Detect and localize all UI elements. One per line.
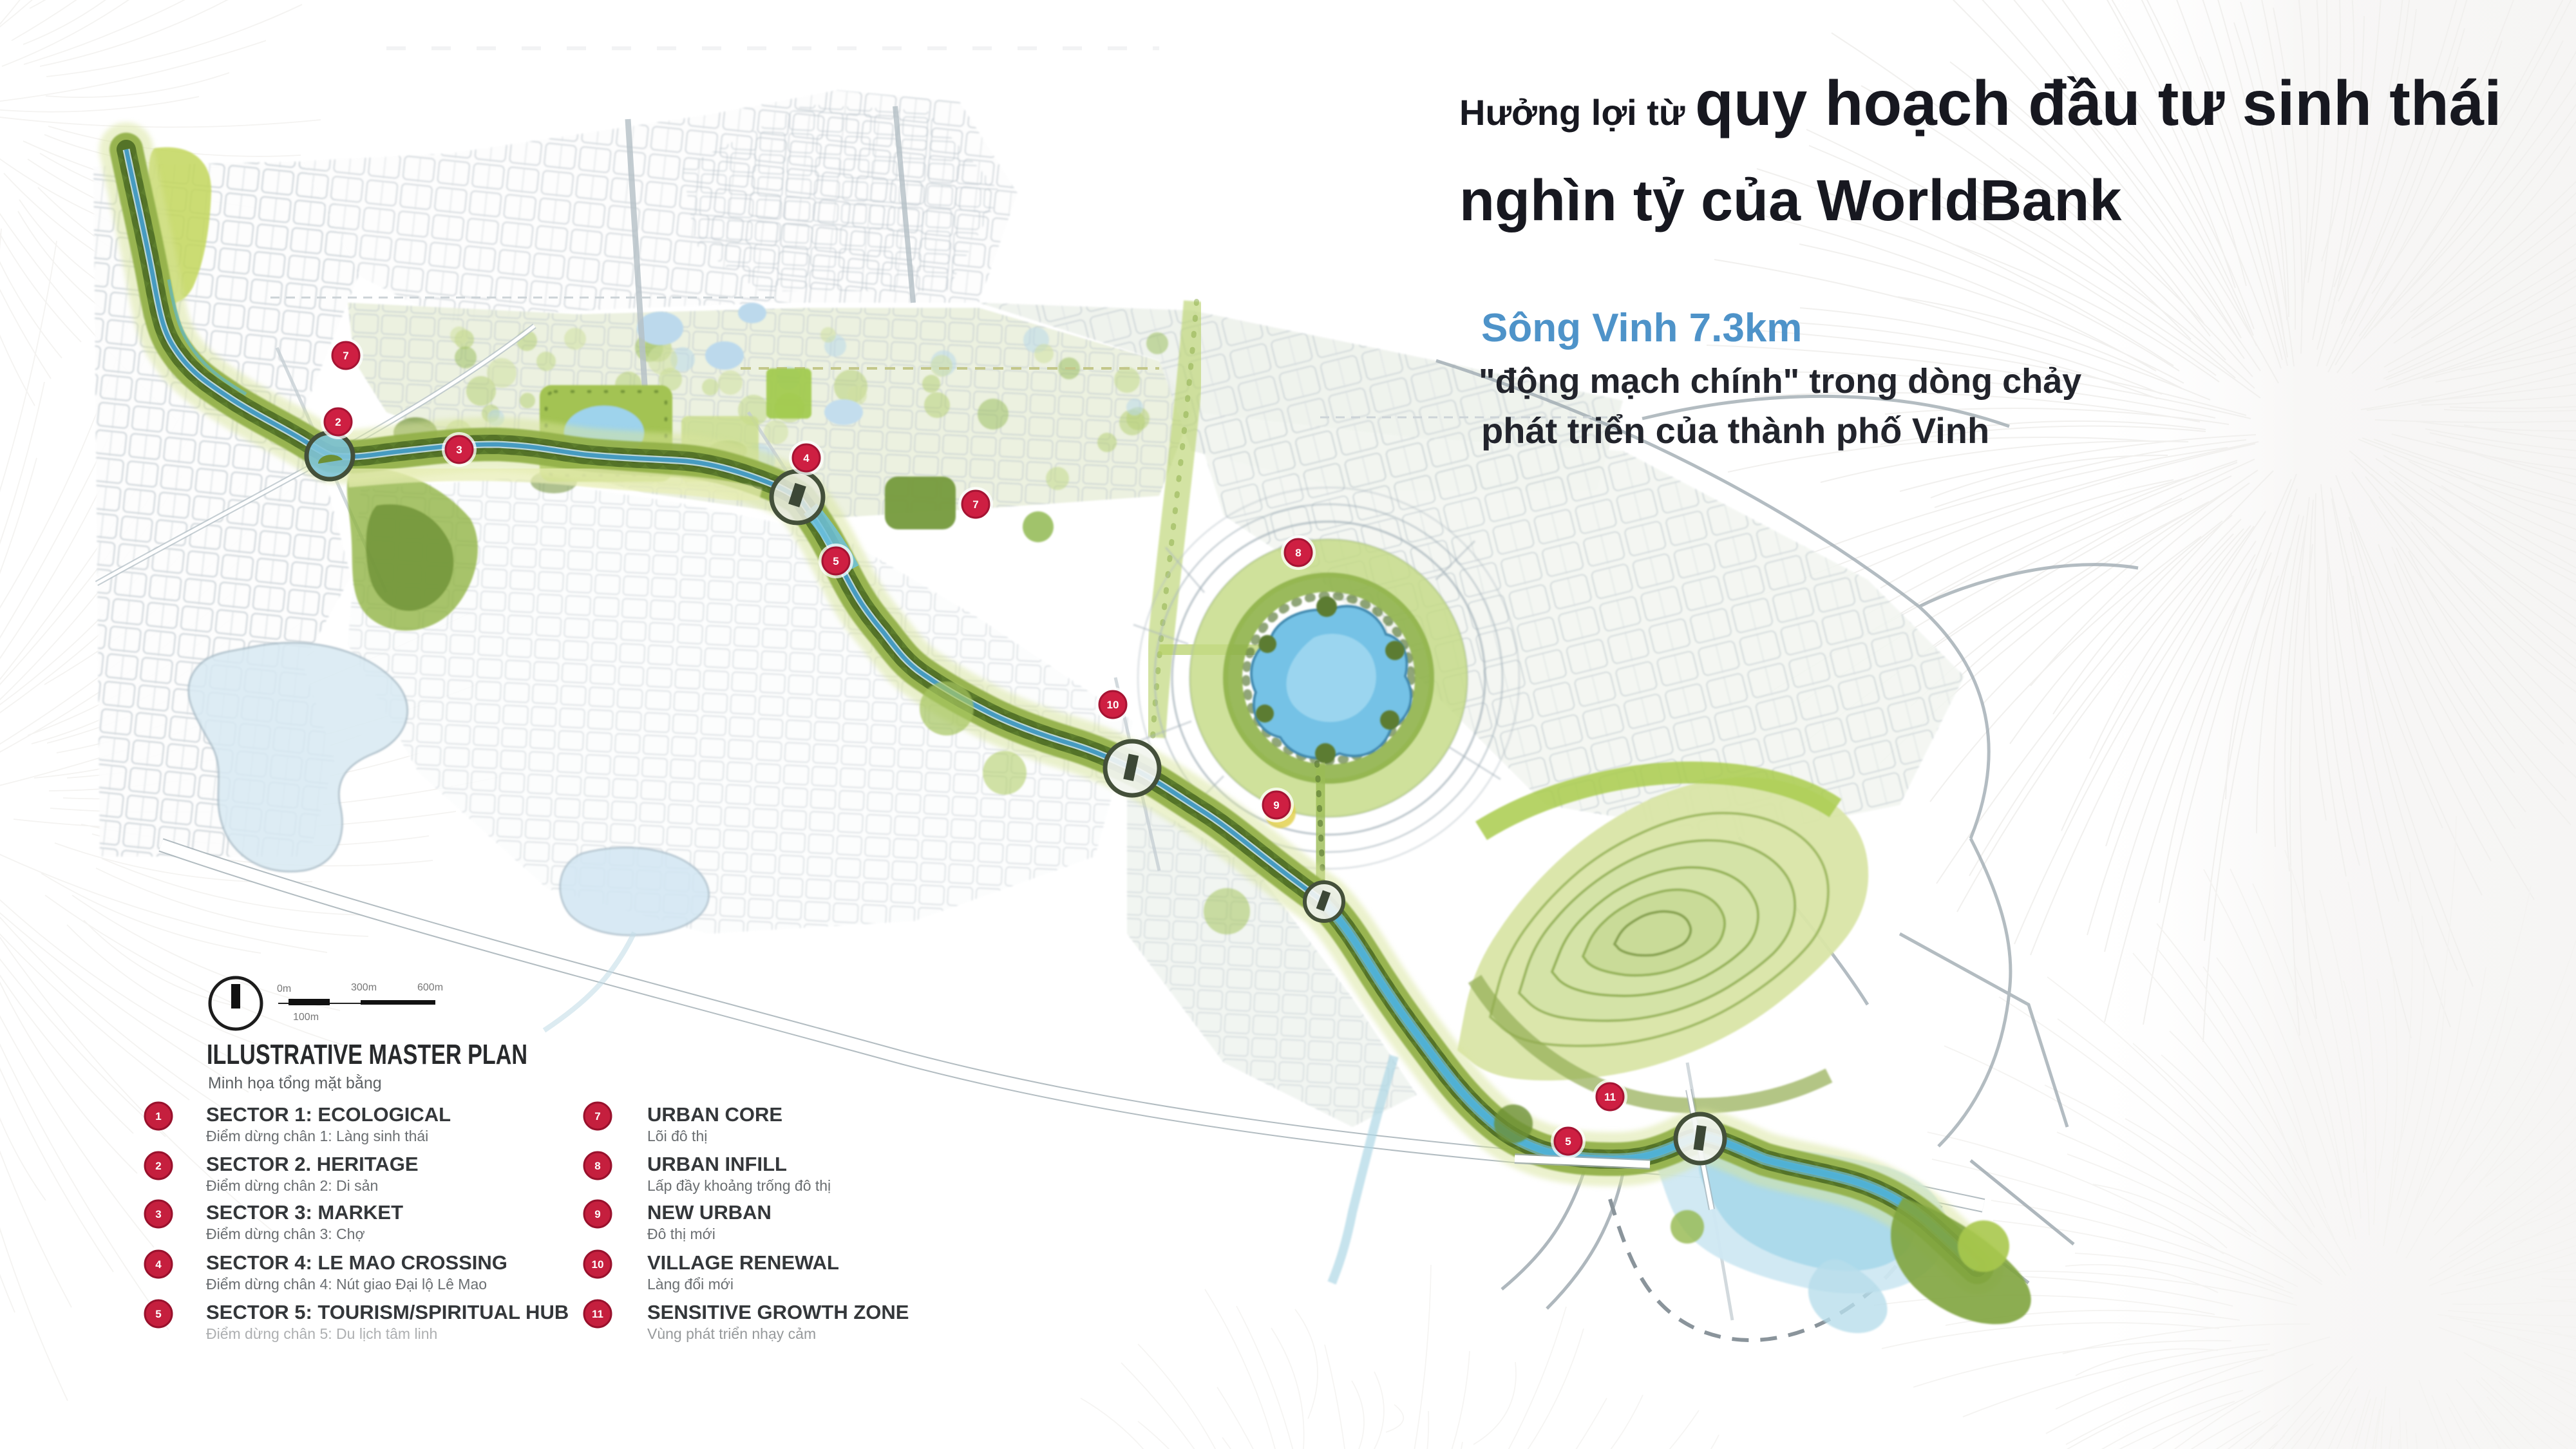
svg-text:Minh họa tổng mặt bằng: Minh họa tổng mặt bằng [208, 1074, 382, 1092]
svg-text:11: 11 [592, 1308, 603, 1320]
svg-text:7: 7 [972, 498, 978, 511]
svg-text:7: 7 [594, 1110, 600, 1122]
svg-text:4: 4 [155, 1258, 162, 1271]
svg-text:VILLAGE RENEWAL: VILLAGE RENEWAL [647, 1251, 839, 1274]
svg-text:7: 7 [343, 350, 348, 362]
svg-text:"động mạch chính" trong dòng c: "động mạch chính" trong dòng chảy [1479, 362, 2081, 401]
svg-text:8: 8 [594, 1160, 600, 1172]
svg-text:Điểm dừng chân 1: Làng sinh th: Điểm dừng chân 1: Làng sinh thái [206, 1128, 428, 1144]
svg-text:9: 9 [594, 1208, 600, 1220]
svg-text:300m: 300m [351, 982, 377, 993]
svg-text:SENSITIVE GROWTH ZONE: SENSITIVE GROWTH ZONE [647, 1301, 909, 1323]
svg-text:Làng đổi mới: Làng đổi mới [647, 1276, 734, 1293]
svg-text:SECTOR 5: TOURISM/SPIRITUAL HU: SECTOR 5: TOURISM/SPIRITUAL HUB [206, 1301, 569, 1323]
svg-text:11: 11 [1604, 1091, 1616, 1103]
svg-text:1: 1 [155, 1110, 161, 1122]
svg-text:2: 2 [335, 416, 341, 428]
svg-text:SECTOR 2. HERITAGE: SECTOR 2. HERITAGE [206, 1153, 419, 1175]
svg-text:9: 9 [1273, 799, 1279, 811]
svg-text:SECTOR 1: ECOLOGICAL: SECTOR 1: ECOLOGICAL [206, 1103, 451, 1126]
svg-text:10: 10 [1107, 699, 1119, 711]
svg-text:SECTOR 4: LE MAO CROSSING: SECTOR 4: LE MAO CROSSING [206, 1251, 507, 1274]
svg-text:5: 5 [155, 1308, 161, 1320]
svg-text:0m: 0m [277, 983, 291, 994]
svg-text:Điểm dừng chân 4: Nút giao Đại: Điểm dừng chân 4: Nút giao Đại lộ Lê Mao [206, 1276, 487, 1293]
svg-text:8: 8 [1295, 547, 1301, 559]
svg-text:Đô thị mới: Đô thị mới [647, 1226, 715, 1242]
svg-text:3: 3 [155, 1208, 161, 1220]
svg-text:Lấp đầy khoảng trống đô thị: Lấp đầy khoảng trống đô thị [647, 1177, 831, 1194]
svg-text:URBAN INFILL: URBAN INFILL [647, 1153, 787, 1175]
svg-text:2: 2 [155, 1160, 161, 1172]
svg-text:Điểm dừng chân 2: Di sản: Điểm dừng chân 2: Di sản [206, 1177, 378, 1194]
svg-text:Điểm dừng chân 5: Du lịch tâm: Điểm dừng chân 5: Du lịch tâm linh [206, 1325, 437, 1342]
svg-text:Lõi đô thị: Lõi đô thị [647, 1128, 707, 1144]
svg-text:3: 3 [456, 444, 462, 456]
svg-text:URBAN CORE: URBAN CORE [647, 1103, 782, 1126]
svg-text:Điểm dừng chân 3: Chợ: Điểm dừng chân 3: Chợ [206, 1226, 365, 1242]
svg-text:nghìn tỷ của WorldBank: nghìn tỷ của WorldBank [1459, 169, 2122, 233]
svg-text:5: 5 [833, 555, 838, 567]
svg-text:5: 5 [1565, 1135, 1571, 1148]
svg-text:ILLUSTRATIVE MASTER PLAN: ILLUSTRATIVE MASTER PLAN [207, 1039, 527, 1070]
svg-text:4: 4 [803, 452, 810, 464]
svg-text:100m: 100m [293, 1012, 319, 1023]
svg-text:600m: 600m [417, 982, 443, 993]
svg-text:NEW URBAN: NEW URBAN [647, 1201, 772, 1224]
svg-text:Sông Vinh 7.3km: Sông Vinh 7.3km [1481, 306, 1802, 350]
svg-text:phát triển của thành phố Vinh: phát triển của thành phố Vinh [1481, 410, 1989, 451]
svg-text:SECTOR 3: MARKET: SECTOR 3: MARKET [206, 1201, 403, 1224]
svg-text:10: 10 [592, 1258, 604, 1271]
svg-text:Vùng phát triển nhạy cảm: Vùng phát triển nhạy cảm [647, 1325, 816, 1342]
